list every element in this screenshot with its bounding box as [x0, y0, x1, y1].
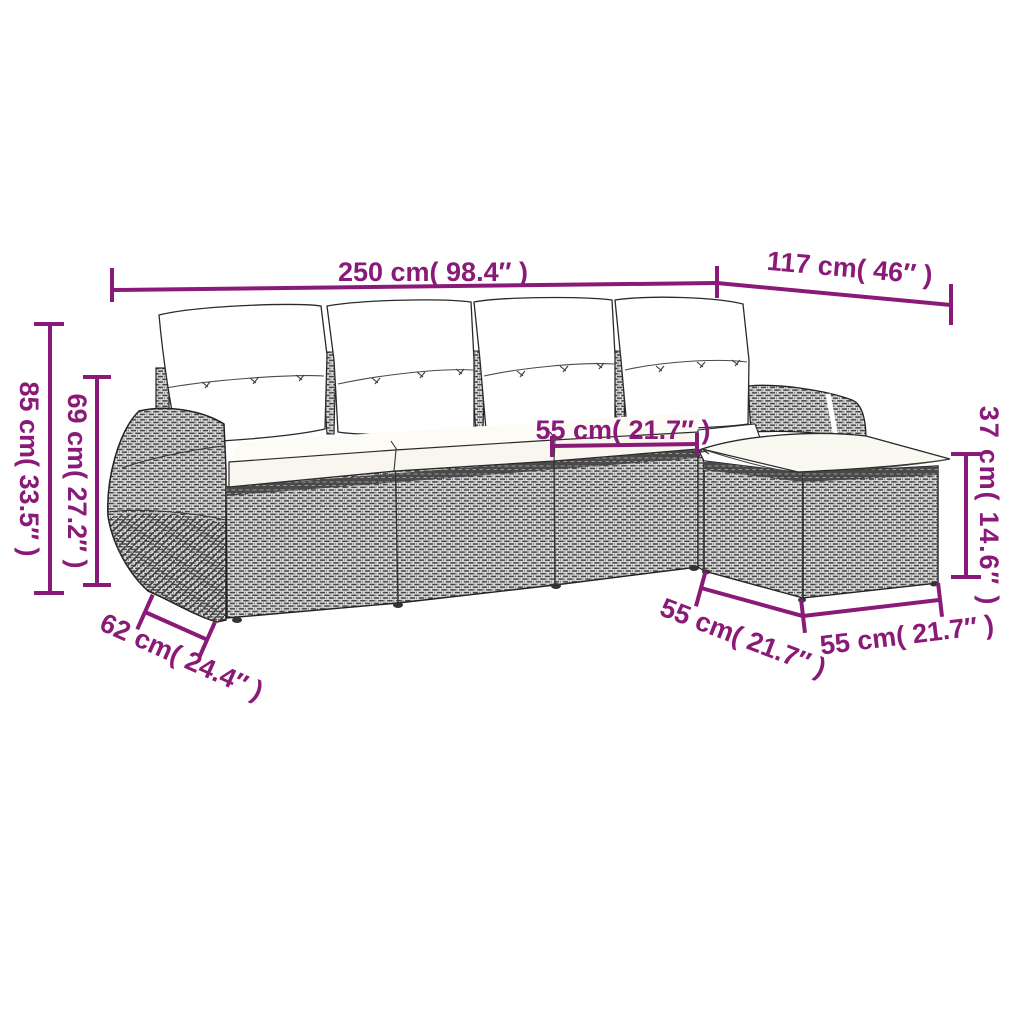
svg-text:37 cm( 14.6″ ): 37 cm( 14.6″ ): [974, 406, 1004, 606]
svg-text:55 cm( 21.7″ ): 55 cm( 21.7″ ): [535, 415, 710, 445]
svg-text:250 cm( 98.4″ ): 250 cm( 98.4″ ): [338, 257, 528, 287]
svg-text:69 cm( 27.2″ ): 69 cm( 27.2″ ): [62, 393, 92, 568]
svg-text:85 cm( 33.5″ ): 85 cm( 33.5″ ): [14, 381, 44, 556]
